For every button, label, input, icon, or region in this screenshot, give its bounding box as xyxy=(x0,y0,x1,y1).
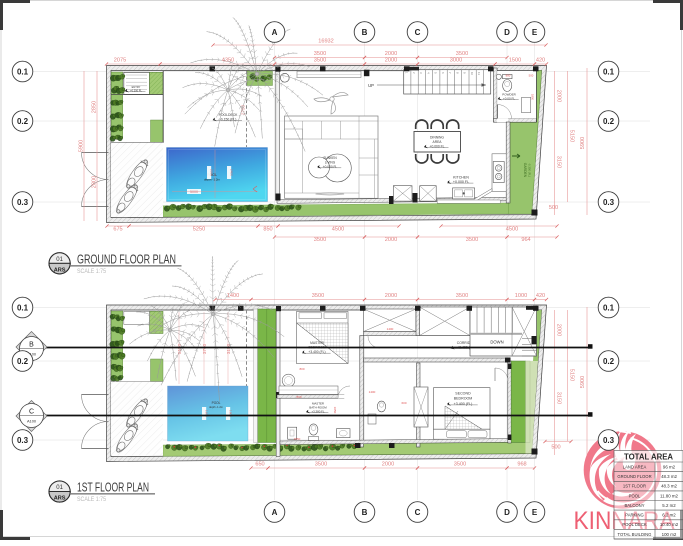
svg-text:4500: 4500 xyxy=(332,227,344,233)
svg-text:16932: 16932 xyxy=(318,39,334,45)
svg-text:SUNKEN: SUNKEN xyxy=(323,156,337,160)
svg-text:3500: 3500 xyxy=(314,51,326,57)
svg-text:2400: 2400 xyxy=(229,169,233,176)
svg-text:0.2: 0.2 xyxy=(17,117,29,126)
svg-text:LAND AREA: LAND AREA xyxy=(623,464,647,469)
svg-text:0.3: 0.3 xyxy=(603,436,615,445)
svg-text:5.2 m2: 5.2 m2 xyxy=(662,503,676,508)
svg-text:1400: 1400 xyxy=(387,327,394,331)
svg-text:6.2 m2: 6.2 m2 xyxy=(662,513,676,518)
svg-text:-0.150 (FL): -0.150 (FL) xyxy=(220,117,237,121)
svg-text:ARS: ARS xyxy=(54,496,66,502)
svg-text:AREA: AREA xyxy=(433,140,443,144)
svg-text:DOWN: DOWN xyxy=(490,340,503,345)
svg-text:A: A xyxy=(272,28,278,37)
svg-text:2000: 2000 xyxy=(556,324,562,336)
svg-text:3500: 3500 xyxy=(456,51,468,57)
svg-text:5900: 5900 xyxy=(580,376,586,388)
svg-text:+0.250 FL: +0.250 FL xyxy=(130,89,142,93)
svg-text:UP: UP xyxy=(368,83,374,88)
svg-text:5150: 5150 xyxy=(569,130,575,142)
svg-text:0.1: 0.1 xyxy=(17,67,29,76)
svg-text:800: 800 xyxy=(299,367,304,371)
svg-text:2075: 2075 xyxy=(114,58,126,64)
svg-text:0.2: 0.2 xyxy=(17,357,29,366)
svg-text:5250: 5250 xyxy=(193,227,205,233)
svg-text:880: 880 xyxy=(506,74,511,78)
svg-text:4350: 4350 xyxy=(222,58,234,64)
svg-text:A100: A100 xyxy=(27,419,37,424)
svg-text:0.3: 0.3 xyxy=(17,198,29,207)
svg-text:C: C xyxy=(29,409,34,416)
svg-text:GROUND FLOOR PLAN: GROUND FLOOR PLAN xyxy=(77,253,176,267)
svg-text:3500: 3500 xyxy=(314,58,326,64)
svg-text:3500: 3500 xyxy=(312,293,324,299)
svg-text:100 m2: 100 m2 xyxy=(662,532,677,537)
svg-text:964: 964 xyxy=(521,237,530,243)
svg-text:96 m2: 96 m2 xyxy=(663,464,676,469)
svg-text:968: 968 xyxy=(517,462,526,468)
svg-text:TOTAL AREA: TOTAL AREA xyxy=(624,453,673,462)
svg-text:0.3: 0.3 xyxy=(17,436,29,445)
svg-text:B: B xyxy=(29,342,34,349)
svg-text:600: 600 xyxy=(401,401,406,405)
svg-text:BEDROOM: BEDROOM xyxy=(454,397,473,401)
svg-text:4500: 4500 xyxy=(506,227,518,233)
svg-text:PARKING: PARKING xyxy=(625,513,644,518)
svg-text:11.80 m2: 11.80 m2 xyxy=(660,493,679,498)
svg-text:POOLDECK: POOLDECK xyxy=(219,113,239,117)
svg-text:3500: 3500 xyxy=(466,237,478,243)
svg-text:MASTER: MASTER xyxy=(310,341,324,345)
svg-text:2000: 2000 xyxy=(209,169,213,176)
svg-text:650: 650 xyxy=(255,462,264,468)
svg-text:5900: 5900 xyxy=(580,137,586,149)
svg-text:3500: 3500 xyxy=(314,237,326,243)
svg-text:3500: 3500 xyxy=(315,462,327,468)
svg-text:-0.300 (FL): -0.300 (FL) xyxy=(528,163,532,177)
svg-text:2000: 2000 xyxy=(385,293,397,299)
svg-text:3150: 3150 xyxy=(556,392,562,404)
svg-text:POOL: POOL xyxy=(629,493,641,498)
svg-text:0.1: 0.1 xyxy=(603,303,615,312)
svg-text:1400: 1400 xyxy=(369,390,376,394)
svg-text:2000: 2000 xyxy=(385,58,397,64)
svg-text:10.40 m2: 10.40 m2 xyxy=(660,522,679,527)
svg-text:GROUND FLOOR: GROUND FLOOR xyxy=(617,474,651,479)
svg-text:+3.380 FL: +3.380 FL xyxy=(311,410,324,414)
svg-text:1000: 1000 xyxy=(515,293,527,299)
svg-text:1550: 1550 xyxy=(294,437,301,441)
svg-text:TOTAL BUILDING: TOTAL BUILDING xyxy=(618,532,652,537)
svg-text:+0.00 FL: +0.00 FL xyxy=(503,97,515,101)
svg-text:depth -1.2m: depth -1.2m xyxy=(204,178,221,182)
svg-text:2850: 2850 xyxy=(92,101,98,113)
svg-text:C: C xyxy=(415,508,421,517)
svg-text:1ST FLOOR: 1ST FLOOR xyxy=(623,484,646,489)
svg-text:675: 675 xyxy=(113,227,122,233)
svg-text:2000: 2000 xyxy=(385,51,397,57)
svg-text:BALCONY: BALCONY xyxy=(624,503,644,508)
svg-text:SCALE 1:75: SCALE 1:75 xyxy=(77,268,106,275)
svg-text:0.2: 0.2 xyxy=(603,117,615,126)
svg-text:3500: 3500 xyxy=(454,462,466,468)
svg-text:01: 01 xyxy=(56,257,63,263)
svg-text:0.1: 0.1 xyxy=(603,67,615,76)
svg-text:POOL: POOL xyxy=(212,401,221,405)
svg-text:2800: 2800 xyxy=(92,176,98,188)
svg-text:2000: 2000 xyxy=(385,237,397,243)
svg-text:48.3 m2: 48.3 m2 xyxy=(661,484,677,489)
svg-text:1800: 1800 xyxy=(531,94,535,101)
svg-text:0.2: 0.2 xyxy=(603,357,615,366)
svg-text:LIVING: LIVING xyxy=(325,160,336,164)
svg-text:+3.400 (FL): +3.400 (FL) xyxy=(454,402,473,406)
svg-text:11: 11 xyxy=(477,72,481,75)
svg-text:E: E xyxy=(532,28,538,37)
svg-text:10: 10 xyxy=(470,72,474,76)
svg-text:A: A xyxy=(272,508,278,517)
svg-text:5000: 5000 xyxy=(190,190,198,194)
svg-text:+0.000 FL: +0.000 FL xyxy=(430,145,445,149)
svg-text:1400: 1400 xyxy=(227,293,239,299)
svg-text:SECOND: SECOND xyxy=(455,392,471,396)
svg-text:3000: 3000 xyxy=(450,58,462,64)
svg-text:0.3: 0.3 xyxy=(603,198,615,207)
svg-text:48.3 m2: 48.3 m2 xyxy=(661,474,677,479)
svg-text:+0.000 FL: +0.000 FL xyxy=(453,180,469,184)
svg-text:500: 500 xyxy=(549,205,558,211)
svg-text:DINNING: DINNING xyxy=(430,136,444,140)
svg-text:3500: 3500 xyxy=(456,293,468,299)
svg-text:+0.000 FL: +0.000 FL xyxy=(323,165,338,169)
svg-text:2000: 2000 xyxy=(556,90,562,102)
svg-text:800: 800 xyxy=(296,395,301,399)
svg-text:850: 850 xyxy=(263,227,272,233)
svg-text:C: C xyxy=(415,28,421,37)
svg-text:1050: 1050 xyxy=(333,407,337,414)
svg-text:1500: 1500 xyxy=(509,58,521,64)
svg-text:420: 420 xyxy=(536,293,545,299)
svg-text:2000: 2000 xyxy=(382,462,394,468)
svg-text:ARS: ARS xyxy=(54,268,66,274)
svg-text:E: E xyxy=(532,508,538,517)
svg-text:3150: 3150 xyxy=(556,156,562,168)
svg-text:5900: 5900 xyxy=(79,140,85,152)
svg-text:3700: 3700 xyxy=(202,343,207,354)
svg-text:depth -1.2m: depth -1.2m xyxy=(209,405,223,409)
svg-text:D: D xyxy=(504,508,510,517)
svg-text:SCALE 1:75: SCALE 1:75 xyxy=(77,496,106,503)
svg-text:KITCHEN: KITCHEN xyxy=(453,176,469,180)
svg-text:1ST FLOOR PLAN: 1ST FLOOR PLAN xyxy=(77,481,149,495)
svg-text:D: D xyxy=(504,28,510,37)
svg-text:B: B xyxy=(362,28,368,37)
svg-text:POOL DECK: POOL DECK xyxy=(622,522,646,527)
svg-text:500: 500 xyxy=(529,74,534,78)
svg-text:GARDEN: GARDEN xyxy=(523,163,527,178)
svg-text:500: 500 xyxy=(551,445,560,451)
svg-text:420: 420 xyxy=(536,58,545,64)
svg-text:01: 01 xyxy=(56,485,63,491)
svg-text:ENTRY: ENTRY xyxy=(132,85,141,89)
svg-text:0.1: 0.1 xyxy=(17,303,29,312)
svg-text:+3.400 (FL): +3.400 (FL) xyxy=(308,350,325,354)
svg-text:5150: 5150 xyxy=(569,369,575,381)
svg-text:B: B xyxy=(362,508,368,517)
